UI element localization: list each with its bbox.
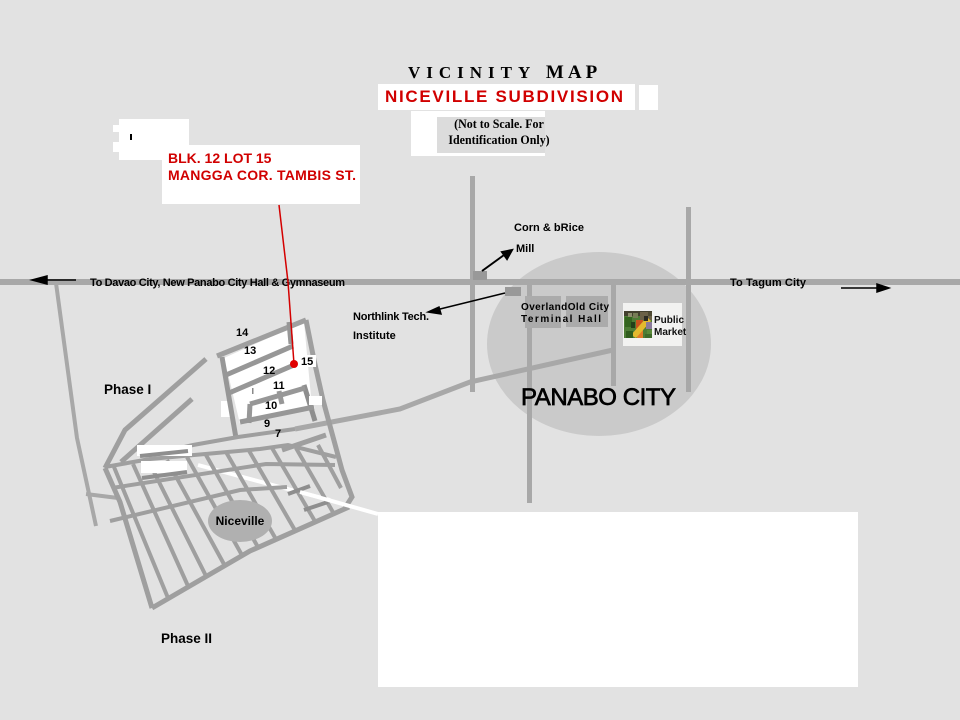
svg-text:Northlink Tech.: Northlink Tech.	[353, 311, 429, 323]
svg-text:Market: Market	[654, 327, 687, 338]
svg-text:Phase II: Phase II	[161, 631, 212, 646]
svg-text:12: 12	[263, 365, 275, 377]
svg-text:11: 11	[273, 380, 285, 392]
svg-text:14: 14	[236, 327, 249, 339]
svg-text:Phase I: Phase I	[104, 382, 151, 397]
svg-text:10: 10	[265, 400, 277, 412]
svg-text:PANABO CITY: PANABO CITY	[521, 384, 676, 411]
svg-text:9: 9	[264, 418, 270, 430]
svg-text:Public: Public	[654, 315, 684, 326]
svg-text:To Tagum City: To Tagum City	[730, 277, 807, 289]
svg-text:Institute: Institute	[353, 330, 396, 342]
svg-text:13: 13	[244, 345, 256, 357]
svg-text:7: 7	[275, 428, 281, 440]
svg-text:Mill: Mill	[516, 243, 534, 255]
svg-text:Corn & bRice: Corn & bRice	[514, 222, 584, 234]
svg-text:15: 15	[301, 356, 313, 368]
svg-text:OverlandOld City: OverlandOld City	[521, 302, 609, 313]
svg-text:Niceville: Niceville	[216, 514, 265, 528]
svg-text:To Davao City, New Panabo City: To Davao City, New Panabo City Hall & Gy…	[90, 277, 345, 289]
